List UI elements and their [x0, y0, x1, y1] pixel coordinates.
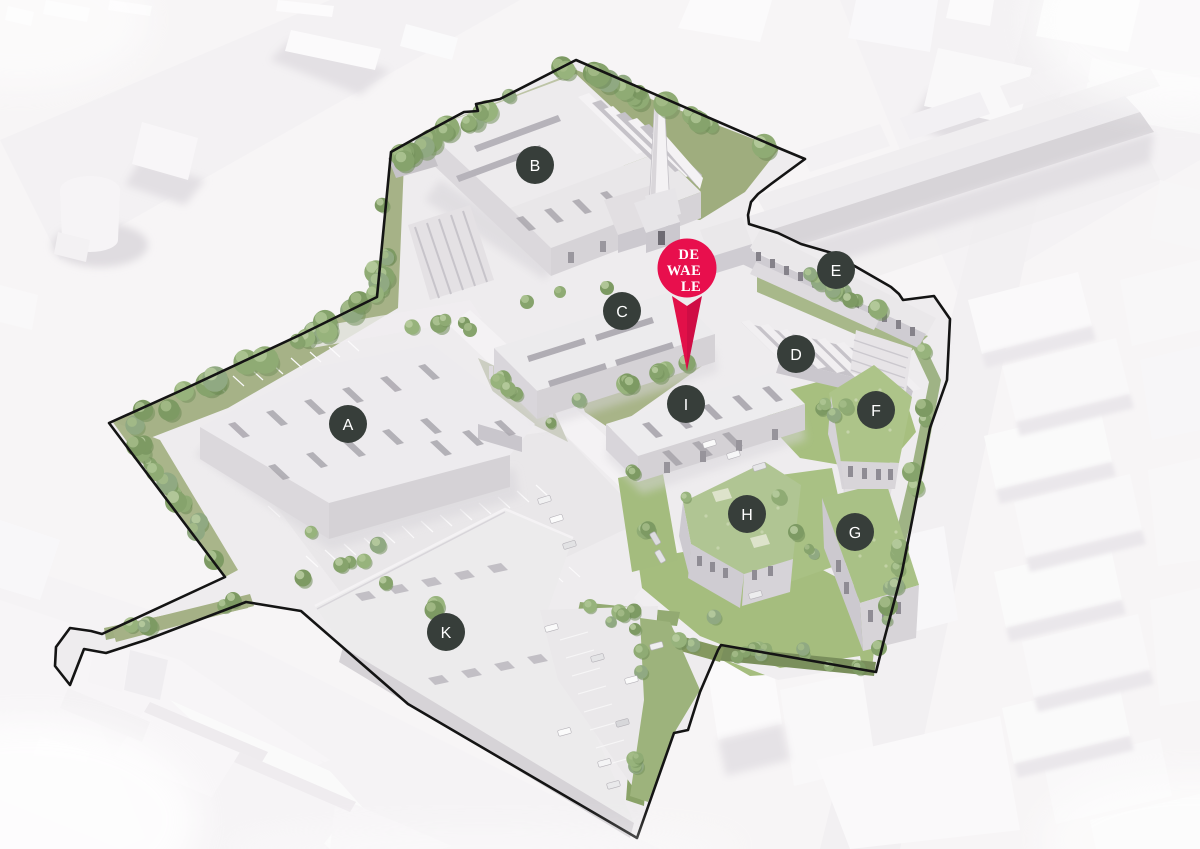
svg-text:F: F	[871, 403, 881, 420]
svg-text:B: B	[530, 158, 541, 175]
svg-text:K: K	[441, 625, 452, 642]
svg-text:WAE: WAE	[667, 263, 702, 279]
svg-text:D: D	[790, 347, 802, 364]
svg-text:H: H	[741, 507, 753, 524]
svg-text:DE: DE	[678, 247, 699, 263]
svg-text:G: G	[849, 525, 861, 542]
svg-text:E: E	[831, 263, 842, 280]
svg-text:C: C	[616, 304, 628, 321]
svg-text:A: A	[343, 417, 354, 434]
svg-text:LE: LE	[681, 279, 701, 295]
svg-text:I: I	[684, 397, 688, 414]
